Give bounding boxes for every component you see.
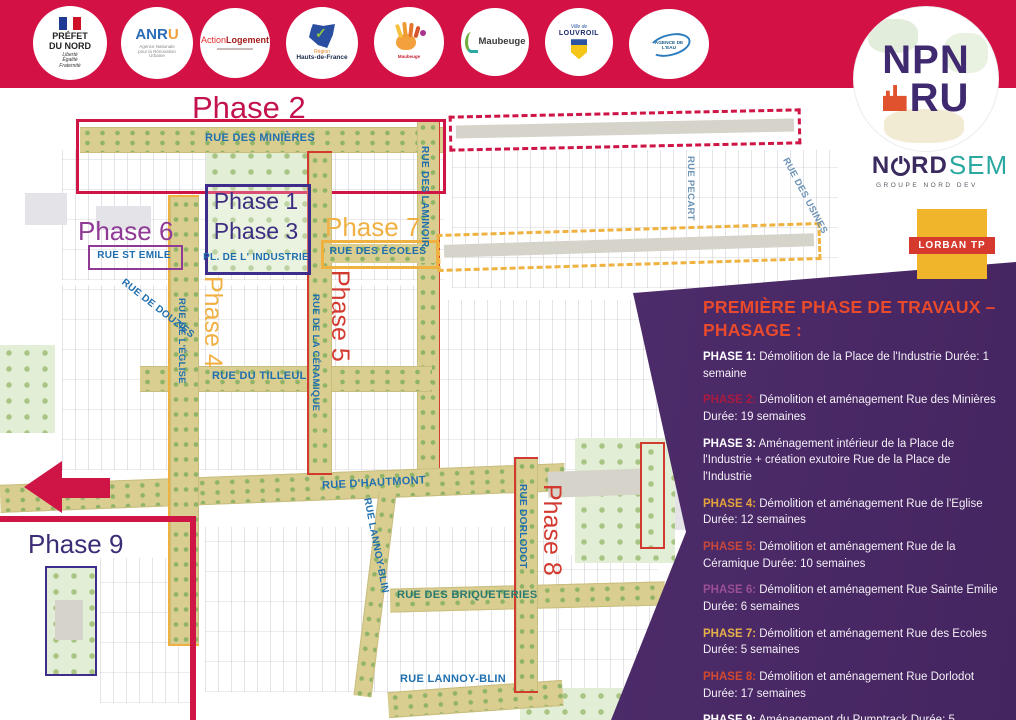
phase-list-item: PHASE 3: Aménagement intérieur de la Pla… (703, 436, 1001, 486)
street-label-pecart: RUE PECART (685, 156, 696, 246)
logo-text: Maubeuge (398, 55, 420, 60)
phase-list-item: PHASE 9: Aménagement du Pumptrack Durée:… (703, 712, 1001, 720)
phase-item-label: PHASE 1: (703, 351, 756, 363)
phase-list: PHASE 1: Démolition de la Place de l'Ind… (703, 349, 1001, 720)
panel-title-line2: PHASAGE : (703, 319, 1008, 342)
panel-title: PREMIÈRE PHASE DE TRAVAUX – PHASAGE : (703, 296, 1008, 342)
green-area-west (0, 345, 55, 433)
logo-anru: ANRU Agence Nationale pour la Rénovation… (121, 7, 193, 79)
logo-text: AGENCE DE L'EAU (647, 41, 691, 51)
pumptrack-park (47, 568, 95, 674)
phase-item-label: PHASE 3: (703, 438, 756, 450)
nordsem-subtext: GROUPE NORD DEV (870, 182, 1010, 189)
logo-motto: Fraternité (59, 64, 80, 69)
phase5-tree-strip (640, 442, 665, 549)
phase-list-item: PHASE 7: Démolition et aménagement Rue d… (703, 626, 1001, 659)
phase-list-item: PHASE 5: Démolition et aménagement Rue d… (703, 539, 1001, 572)
road-strip (456, 118, 794, 138)
panel-title-line1: PREMIÈRE PHASE DE TRAVAUX – (703, 296, 1008, 319)
phase7-heading: Phase 7 (325, 212, 420, 243)
logo-npnru: NPN RU (853, 6, 999, 152)
phase-item-label: PHASE 7: (703, 628, 756, 640)
hand-icon (394, 24, 424, 54)
logo-prefet-du-nord: PRÉFET DU NORD Liberté Égalité Fraternit… (33, 6, 107, 80)
logo-text: Logement (226, 35, 269, 45)
phase-list-item: PHASE 4: Démolition et aménagement Rue d… (703, 496, 1001, 529)
logo-ville-de-maubeuge: Maubeuge (461, 8, 529, 76)
phase-list-item: PHASE 2: Démolition et aménagement Rue d… (703, 392, 1001, 425)
phase-item-label: PHASE 8: (703, 671, 756, 683)
phase9-heading: Phase 9 (28, 529, 123, 560)
crest-icon (571, 39, 587, 59)
green-swoosh-icon (465, 32, 478, 53)
logo-maubeuge-creative-hand: Maubeuge (374, 7, 444, 77)
logo-text: DU NORD (49, 42, 91, 51)
logo-text: U (168, 26, 179, 43)
phase4-heading: Phase 4 (198, 276, 227, 391)
nordsem-rd: RD (911, 152, 948, 180)
logo-ville-de-louvroil: Ville de LOUVROIL (545, 8, 613, 76)
phase-item-label: PHASE 9: (703, 714, 756, 720)
phase5-heading: Phase 5 (325, 270, 354, 385)
logo-text: ANR (135, 26, 168, 43)
street-label-dorlodot: RUE DORLODOT (517, 484, 528, 599)
phase3-heading: Phase 3 (212, 218, 300, 245)
npnru-text-bottom: RU (910, 79, 970, 117)
phase-item-label: PHASE 5: (703, 541, 756, 553)
phase-list-item: PHASE 6: Démolition et aménagement Rue S… (703, 582, 1001, 615)
phase1-heading: Phase 1 (212, 188, 300, 215)
phase-item-label: PHASE 4: (703, 498, 756, 510)
street-label-laminoir: RUE DES LAMINOIR (419, 146, 430, 331)
logo-lorban-label: LORBAN TP (909, 237, 995, 254)
logo-text: Hauts-de-France (296, 55, 347, 62)
phase8-heading: Phase 8 (537, 484, 566, 599)
phase-item-label: PHASE 6: (703, 584, 756, 596)
nordsem-sem: SEM (949, 150, 1008, 181)
logo-text: LOUVROIL (559, 30, 599, 37)
phase-list-item: PHASE 8: Démolition et aménagement Rue D… (703, 669, 1001, 702)
street-label-briqueteries: RUE DES BRIQUETERIES (397, 589, 537, 601)
logo-action-logement: ActionLogement (200, 8, 270, 78)
building-block (25, 193, 67, 225)
building-icon (883, 85, 907, 111)
check-icon: ✓ (315, 26, 327, 41)
street-label-ecoles: RUE DES ÉCOLES (324, 244, 432, 258)
left-arrow-shaft (60, 478, 110, 498)
nordsem-n: N (872, 152, 890, 180)
phase-list-item: PHASE 1: Démolition de la Place de l'Ind… (703, 349, 1001, 382)
logo-nordsem: N RD SEM GROUPE NORD DEV (870, 150, 1010, 189)
logo-text: Maubeuge (479, 37, 526, 47)
logo-subtext-line (217, 48, 253, 50)
logo-agence-de-leau: AGENCE DE L'EAU (629, 9, 709, 79)
france-map-icon: ✓ (309, 24, 335, 48)
power-o-icon (891, 157, 910, 176)
street-label-st-emile: RUE ST EMILE (90, 248, 178, 262)
street-label-ceramique: RUE DE LA CÉRAMIQUE (310, 294, 321, 454)
phase9-park-box (45, 566, 97, 676)
phase2-dashed-extension (449, 108, 802, 151)
street-label-minieres: RUE DES MINIÈRES (150, 130, 370, 146)
french-flag-icon (59, 17, 81, 30)
phase2-heading: Phase 2 (192, 90, 306, 126)
phase-item-label: PHASE 2: (703, 394, 756, 406)
left-arrow (24, 461, 62, 513)
water-swoosh-icon: AGENCE DE L'EAU (647, 32, 691, 56)
logo-subtext: Agence Nationale pour la Rénovation Urba… (135, 45, 179, 59)
logo-text: Action (201, 35, 226, 45)
street-label-pl-industrie: PL. DE L' INDUSTRIE (208, 250, 304, 264)
phasing-plan-page: RUE DES MINIÈRES RUE DES LAMINOIR RUE PE… (0, 0, 1016, 720)
phase6-heading: Phase 6 (78, 216, 173, 247)
logo-hauts-de-france: ✓ Région Hauts-de-France (286, 7, 358, 79)
road-strip (444, 233, 814, 258)
street-label-lannoy-bottom: RUE LANNOY-BLIN (400, 673, 506, 685)
pumptrack-surface (55, 600, 83, 640)
npnru-text-top: NPN (882, 41, 969, 79)
